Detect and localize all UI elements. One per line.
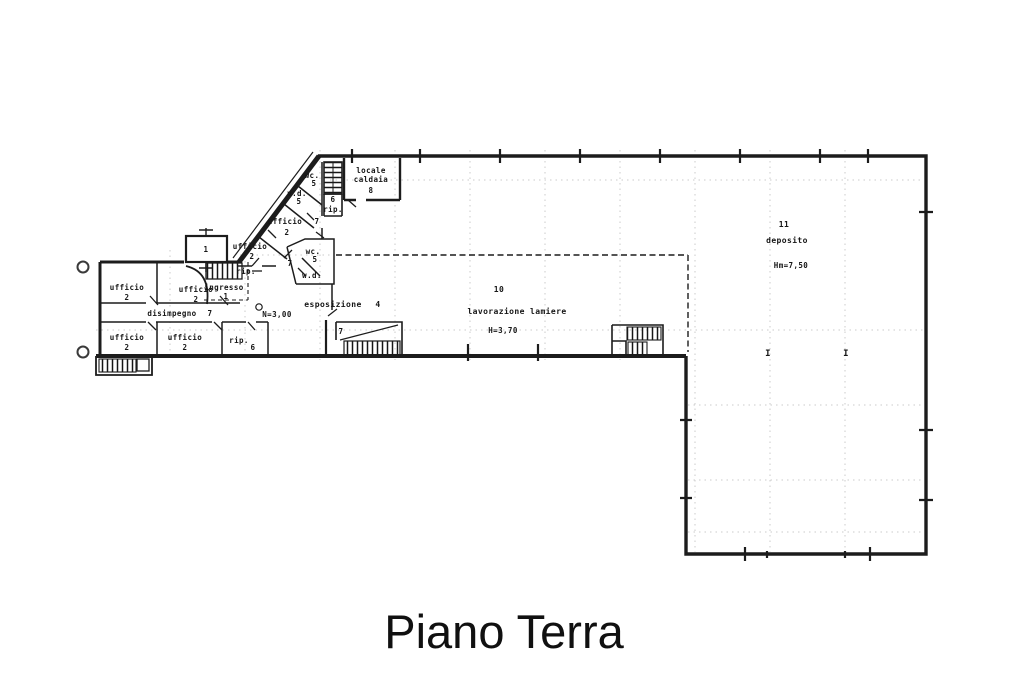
num-corridor-upper: 7 — [315, 217, 320, 226]
floor-plan-canvas: ufficio 2 ufficio 2 disimpegno 7 ufficio… — [0, 0, 1024, 682]
label-showroom: esposizione — [304, 299, 361, 309]
label-workshop: lavorazione lamiere — [467, 306, 566, 316]
label-storage-left: rip. — [229, 336, 249, 345]
label-office-diag-lower: ufficio — [233, 242, 267, 251]
scanned-floor-plan-page: ufficio 2 ufficio 2 disimpegno 7 ufficio… — [0, 0, 1024, 682]
num-wc-lower: 5 — [313, 255, 318, 264]
num-office-top-mid: 2 — [194, 295, 199, 304]
num-workshop: 10 — [494, 285, 504, 294]
label-warehouse: deposito — [766, 235, 808, 245]
label-boiler-line1: locale — [356, 166, 386, 175]
column-mark-a: I — [765, 349, 771, 359]
num-warehouse: 11 — [779, 220, 789, 229]
num-hallway: 7 — [208, 309, 213, 318]
page-title: Piano Terra — [384, 605, 624, 658]
height-workshop: H=3,70 — [488, 326, 518, 335]
num-storage-left: 6 — [251, 343, 256, 352]
label-service-lower: w.d. — [302, 271, 322, 280]
door-swing-mark — [256, 304, 262, 310]
num-showroom: 4 — [375, 300, 380, 309]
punch-holes — [78, 262, 89, 358]
label-entry-storage: rip. — [236, 267, 256, 276]
outer-walls — [96, 156, 926, 554]
label-boiler-line2: caldaia — [354, 175, 388, 184]
label-office-top-left: ufficio — [110, 283, 144, 292]
label-office-bottom-left: ufficio — [110, 333, 144, 342]
column-mark-b: I — [843, 349, 849, 359]
num-stair-top: 6 — [331, 195, 336, 204]
label-stair-storage: rip. — [323, 205, 343, 214]
label-hallway: disimpegno — [147, 309, 196, 318]
height-showroom: N=3,00 — [262, 310, 292, 319]
height-warehouse: Hm=7,50 — [774, 261, 808, 270]
num-office-diag-upper: 2 — [285, 228, 290, 237]
num-entrance-box: 1 — [204, 245, 209, 254]
num-service-upper: 5 — [297, 197, 302, 206]
num-corridor-lower: 7 — [288, 259, 293, 268]
num-office-bottom-left: 2 — [125, 343, 130, 352]
label-vestibule: ingresso — [204, 283, 243, 292]
num-boiler: 8 — [369, 186, 374, 195]
stair-showroom — [326, 309, 402, 356]
label-office-bottom-mid: ufficio — [168, 333, 202, 342]
num-office-top-left: 2 — [125, 293, 130, 302]
num-vestibule: 1 — [224, 292, 229, 301]
grid-lines — [96, 150, 924, 552]
stair-external — [96, 356, 152, 375]
label-office-diag-upper: ufficio — [268, 217, 302, 226]
num-stair-showroom: 7 — [339, 327, 344, 336]
num-office-diag-lower: 2 — [250, 252, 255, 261]
num-wc-upper: 5 — [312, 179, 317, 188]
num-office-bottom-mid: 2 — [183, 343, 188, 352]
